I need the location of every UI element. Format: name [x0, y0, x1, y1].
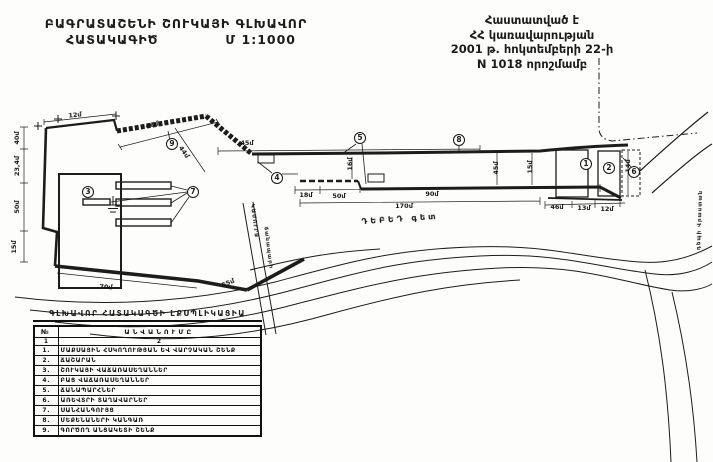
dimension-label: 40մ [13, 131, 21, 144]
dimension-label: 45մ [240, 139, 253, 147]
legend-marker-7: 7 [187, 186, 199, 198]
legend-marker-3: 3 [82, 186, 94, 198]
legend-row: 3.ՇՈՒԿԱՅԻ ՎԱՃԱՌԱՍԵՂԱՆՆԵՐ [34, 366, 261, 376]
boundary-left-edge [43, 128, 57, 266]
road-bottom-right [645, 270, 697, 462]
dimension-label: 12մ [600, 205, 613, 213]
legend-row-name: ՃԱՇԱՐԱՆ [58, 356, 261, 366]
legend-row: 2.ՃԱՇԱՐԱՆ [34, 356, 261, 366]
approval-line: 2001 թ. հոկտեմբերի 22-ի [420, 42, 644, 57]
legend-row-no: 5. [34, 386, 58, 396]
dimension-label: 13մ [577, 204, 590, 212]
dimension-label: 50մ [332, 192, 345, 200]
boundary-fence-hatched-2 [206, 116, 252, 154]
legend-row-name: ԲԱՑ ՎԱՃԱՌԱՍԵՂԱՆՆԵՐ [58, 376, 261, 386]
dimension-label: 46մ [550, 203, 563, 211]
approval-line: ՀՀ կառավարության [420, 28, 644, 43]
scanned-site-plan-page: ԲԱԳՐԱՏԱՇԵՆԻ ՇՈՒԿԱՅԻ ԳԼԽԱՎՈՐ ՀԱՏԱԿԱԳԻԾ Մ … [0, 0, 713, 462]
legend-row-name: ՄԵՔԵՆԱՆԵՐԻ ԿԱՆԳԱՌ [58, 416, 261, 426]
legend-col-no: № [34, 326, 58, 338]
legend-table: №ԱՆՎԱՆՈՒՄԸ121.ՄԱՔՍԱՅԻՆ ՀՍԿՈՂՈՒԹՅԱՆ ԵՎ ՎԱ… [33, 325, 262, 437]
legend-row-name: ՍԱՆՀԱՆԳՈՒՅՑ [58, 406, 261, 416]
legend-marker-2: 2 [603, 162, 615, 174]
approval-stamp-block: Հաստատված է ՀՀ կառավարության 2001 թ. հոկ… [420, 13, 644, 72]
legend-row-no: 1. [34, 346, 58, 356]
legend-row-name: ՄԱՔՍԱՅԻՆ ՀՍԿՈՂՈՒԹՅԱՆ ԵՎ ՎԱՐՉԱԿԱՆ ՇԵՆՔ [58, 346, 261, 356]
legend-row-no: 3. [34, 366, 58, 376]
right-bottom-edge [548, 198, 622, 200]
legend-row: 8.ՄԵՔԵՆԱՆԵՐԻ ԿԱՆԳԱՌ [34, 416, 261, 426]
stall-row [116, 219, 171, 226]
drawing-title-block: ԲԱԳՐԱՏԱՇԵՆԻ ՇՈՒԿԱՅԻ ԳԼԽԱՎՈՐ ՀԱՏԱԿԱԳԻԾ Մ … [38, 16, 314, 47]
legend-row: №ԱՆՎԱՆՈՒՄԸ [34, 326, 261, 338]
legend-marker-5: 5 [354, 132, 366, 144]
dimension-lines [20, 111, 628, 288]
road-top-right [640, 112, 712, 193]
stall-row [116, 182, 171, 189]
legend-col-name: ԱՆՎԱՆՈՒՄԸ [58, 326, 261, 338]
gate-notch-2 [368, 174, 384, 182]
drawing-title-line1: ԲԱԳՐԱՏԱՇԵՆԻ ՇՈՒԿԱՅԻ ԳԼԽԱՎՈՐ [38, 16, 314, 32]
legend-marker-6: 6 [628, 166, 640, 178]
dimension-label: 170մ [395, 202, 413, 210]
legend-row-no: 7. [34, 406, 58, 416]
drawing-scale: Մ 1:1000 [225, 32, 296, 48]
legend-marker-9: 9 [166, 138, 178, 150]
dimension-label: 90մ [425, 190, 438, 198]
approval-line: N 1018 որոշմամբ [420, 57, 644, 72]
legend-subcol-no: 1 [34, 338, 58, 346]
drawing-title-line2: ՀԱՏԱԿԱԳԻԾ [66, 32, 159, 48]
building-1 [556, 150, 588, 197]
legend-row: 4.ԲԱՑ ՎԱՃԱՌԱՍԵՂԱՆՆԵՐ [34, 376, 261, 386]
gate-notch-1 [258, 155, 274, 163]
dimension-label: 70մ [99, 283, 113, 292]
legend-row-name: ԱՌԵՎՏՐԻ ՏԱՂԱՎԱՐՆԵՐ [58, 396, 261, 406]
legend-subcol-name: 2 [58, 338, 261, 346]
legend-row-name: ՃԱՆԱՊԱՐՀՆԵՐ [58, 386, 261, 396]
legend-marker-1: 1 [580, 158, 592, 170]
legend-row-name: ԳՈՐԾՈՂ ԱՆՑԱԿԵՏԻ ՇԵՆՔ [58, 426, 261, 437]
legend-row: 5.ՃԱՆԱՊԱՐՀՆԵՐ [34, 386, 261, 396]
legend-row: 9.ԳՈՐԾՈՂ ԱՆՑԱԿԵՏԻ ՇԵՆՔ [34, 426, 261, 437]
boundary-top-left [46, 120, 117, 131]
legend-block: ԳԼԽԱՎՈՐ ՀԱՏԱԿԱԳԾԻ ԷՔՍՊԼԻԿԱՑԻԱ №ԱՆՎԱՆՈՒՄԸ… [33, 309, 262, 437]
legend-marker-8: 8 [453, 134, 465, 146]
legend-row: 12 [34, 338, 261, 346]
dimension-label: 12մ [68, 110, 82, 119]
dimension-label: 45մ [492, 161, 500, 174]
dimension-label: 15մ [526, 160, 534, 173]
boundary-bottom-edge [55, 266, 247, 290]
legend-row: 1.ՄԱՔՍԱՅԻՆ ՀՍԿՈՂՈՒԹՅԱՆ ԵՎ ՎԱՐՉԱԿԱՆ ՇԵՆՔ [34, 346, 261, 356]
dimension-label: 50մ [13, 200, 21, 213]
legend-row-no: 4. [34, 376, 58, 386]
stall-leader-lines [111, 186, 189, 223]
legend-row: 6.ԱՌԵՎՏՐԻ ՏԱՂԱՎԱՐՆԵՐ [34, 396, 261, 406]
legend-title: ԳԼԽԱՎՈՐ ՀԱՏԱԿԱԳԾԻ ԷՔՍՊԼԻԿԱՑԻԱ [33, 309, 262, 322]
strip-step [358, 181, 361, 189]
legend-row-no: 2. [34, 356, 58, 366]
legend-row-no: 9. [34, 426, 58, 437]
legend-row-name: ՇՈՒԿԱՅԻ ՎԱՃԱՌԱՍԵՂԱՆՆԵՐ [58, 366, 261, 376]
dimension-label: 16մ [346, 157, 354, 170]
legend-marker-4: 4 [271, 172, 283, 184]
stall-row [83, 199, 110, 205]
legend-row-no: 8. [34, 416, 58, 426]
dimension-label: 23,4մ [13, 156, 21, 176]
legend-row: 7.ՍԱՆՀԱՆԳՈՒՅՑ [34, 406, 261, 416]
approval-line: Հաստատված է [420, 13, 644, 28]
dimension-label: 15մ [10, 240, 18, 253]
dimension-label: 18մ [299, 191, 312, 199]
legend-row-no: 6. [34, 396, 58, 406]
